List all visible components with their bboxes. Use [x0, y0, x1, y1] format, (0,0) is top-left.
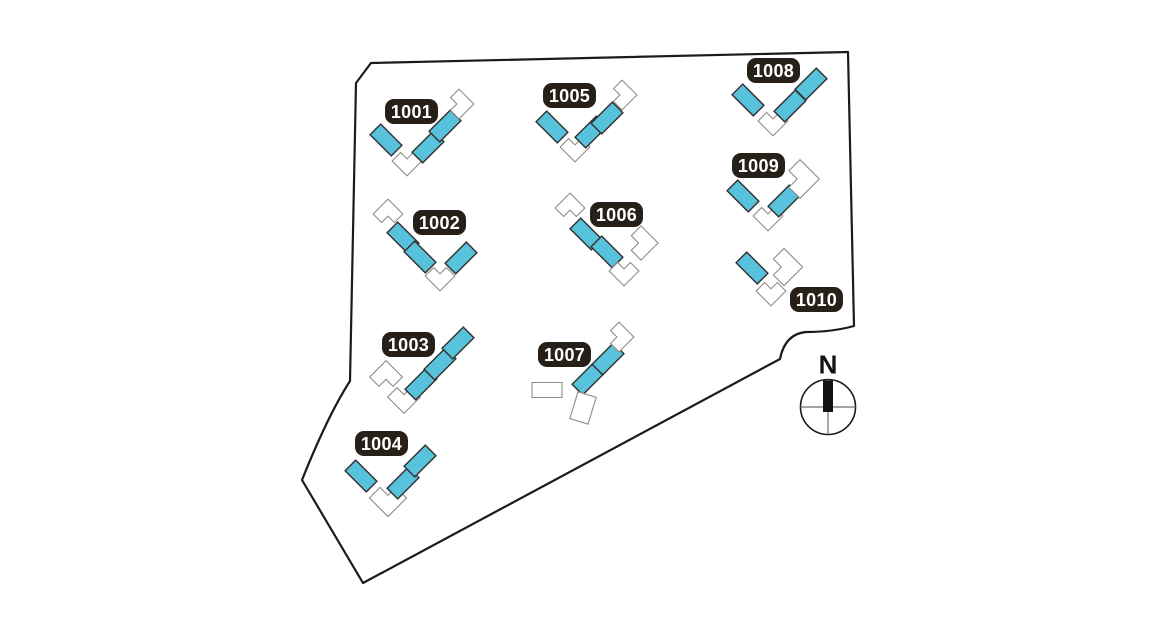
building-label-1008[interactable]: 1008	[747, 58, 800, 83]
building-label-text: 1010	[796, 290, 837, 310]
building-label-1002[interactable]: 1002	[413, 210, 466, 235]
vacant-elbow	[765, 248, 802, 285]
building-label-text: 1008	[753, 61, 794, 81]
site-plan-map: 1001100210031004100510061007100810091010…	[0, 0, 1160, 640]
site-plan-svg: 1001100210031004100510061007100810091010…	[0, 0, 1160, 640]
building-label-text: 1002	[419, 213, 460, 233]
building-label-1005[interactable]: 1005	[543, 83, 596, 108]
building-label-text: 1004	[361, 434, 402, 454]
compass: N	[801, 350, 856, 435]
building-label-text: 1009	[738, 156, 779, 176]
building-label-text: 1006	[596, 205, 637, 225]
building-1007	[532, 322, 634, 424]
building-label-1004[interactable]: 1004	[355, 431, 408, 456]
building-label-1009[interactable]: 1009	[732, 153, 785, 178]
compass-north-label: N	[819, 350, 838, 380]
vacant-unit	[532, 383, 562, 398]
vacant-unit	[570, 392, 596, 424]
building-label-text: 1001	[391, 102, 432, 122]
building-label-1007[interactable]: 1007	[538, 342, 591, 367]
building-unit[interactable]	[727, 180, 759, 212]
building-unit[interactable]	[536, 111, 568, 143]
building-unit[interactable]	[732, 84, 764, 116]
building-unit[interactable]	[445, 242, 477, 274]
building-label-1003[interactable]: 1003	[382, 332, 435, 357]
building-label-1006[interactable]: 1006	[590, 202, 643, 227]
vacant-elbow	[624, 226, 658, 260]
building-label-1010[interactable]: 1010	[790, 287, 843, 312]
building-unit[interactable]	[345, 460, 377, 492]
building-unit[interactable]	[370, 124, 402, 156]
building-unit[interactable]	[736, 252, 768, 284]
building-label-text: 1005	[549, 86, 590, 106]
compass-needle-north	[823, 381, 833, 413]
building-label-text: 1007	[544, 345, 585, 365]
building-label-text: 1003	[388, 335, 429, 355]
building-label-1001[interactable]: 1001	[385, 99, 438, 124]
